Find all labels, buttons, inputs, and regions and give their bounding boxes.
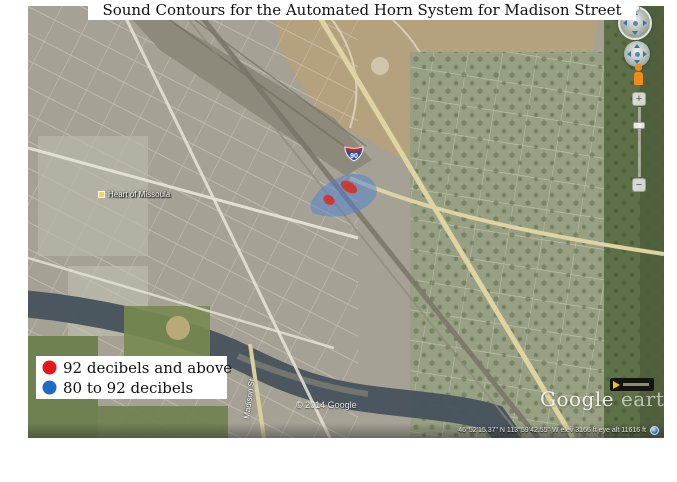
figure-title-box: Sound Contours for the Automated Horn Sy… xyxy=(88,0,636,20)
move-center-icon xyxy=(635,52,640,57)
legend-box: 92 decibels and above 80 to 92 decibels xyxy=(36,356,227,399)
legend-label: 92 decibels and above xyxy=(63,359,232,377)
zoom-out-button[interactable]: − xyxy=(632,178,646,192)
legend-swatch-red-icon xyxy=(42,360,57,375)
globe-icon xyxy=(650,426,659,435)
google-earth-window: 90 Heart of Missoula Madison St © 2014 G… xyxy=(0,0,677,482)
map-copyright: © 2014 Google xyxy=(296,400,357,410)
legend-item-92-and-above: 92 decibels and above xyxy=(42,359,227,377)
status-coordinates: 46°52'15.37" N 113°59'42.55" W elev 3166… xyxy=(458,427,646,434)
interstate-90-shield-icon: 90 xyxy=(344,145,364,162)
zoom-in-button[interactable]: + xyxy=(632,92,646,106)
legend-label: 80 to 92 decibels xyxy=(63,379,193,397)
figure-title: Sound Contours for the Automated Horn Sy… xyxy=(102,1,621,19)
watermark-google: Google xyxy=(540,387,621,411)
poi-icon xyxy=(98,191,105,198)
place-label-heart-of-missoula: Heart of Missoula xyxy=(98,190,170,199)
attribution-logo-text xyxy=(623,383,649,386)
legend-item-80-to-92: 80 to 92 decibels xyxy=(42,379,227,397)
zoom-slider-handle[interactable] xyxy=(633,122,645,129)
look-center-icon xyxy=(633,21,638,26)
imagery-attribution-logo xyxy=(610,378,654,391)
legend-swatch-blue-icon xyxy=(42,380,57,395)
attribution-logo-icon xyxy=(613,381,620,389)
status-bar: 46°52'15.37" N 113°59'42.55" W elev 3166… xyxy=(28,423,664,438)
interstate-number: 90 xyxy=(350,153,358,160)
pegman-icon[interactable] xyxy=(632,64,644,88)
zoom-slider-track[interactable] xyxy=(638,107,641,177)
